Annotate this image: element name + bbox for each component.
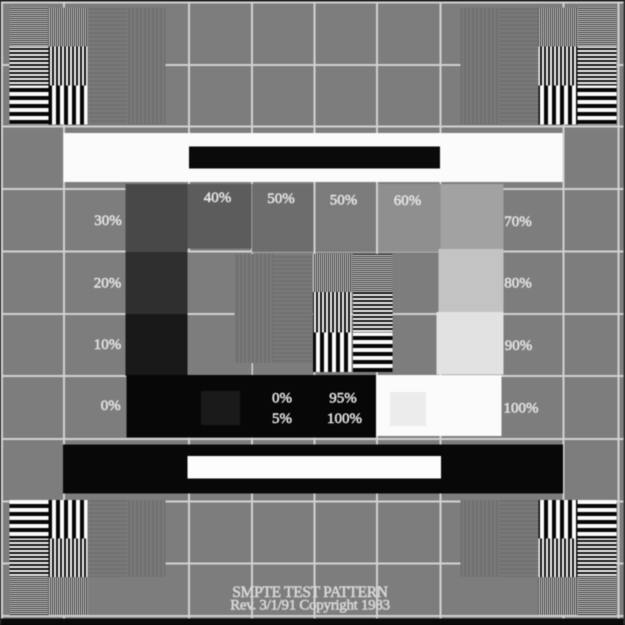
svg-text:10%: 10% [94,337,122,353]
svg-text:Rev. 3/1/91 Copyright 1983: Rev. 3/1/91 Copyright 1983 [230,598,390,614]
svg-text:50%: 50% [330,193,358,209]
svg-text:100%: 100% [327,411,362,427]
svg-text:20%: 20% [94,276,122,292]
svg-text:90%: 90% [505,338,533,354]
svg-text:0%: 0% [272,391,292,407]
svg-text:0%: 0% [101,398,121,414]
svg-text:50%: 50% [267,191,295,207]
svg-text:30%: 30% [94,213,122,229]
svg-text:70%: 70% [504,214,532,230]
svg-text:100%: 100% [504,401,539,417]
svg-text:40%: 40% [204,190,232,206]
svg-text:60%: 60% [394,193,422,209]
svg-text:95%: 95% [329,391,357,407]
svg-text:80%: 80% [504,276,532,292]
svg-text:5%: 5% [272,411,292,427]
